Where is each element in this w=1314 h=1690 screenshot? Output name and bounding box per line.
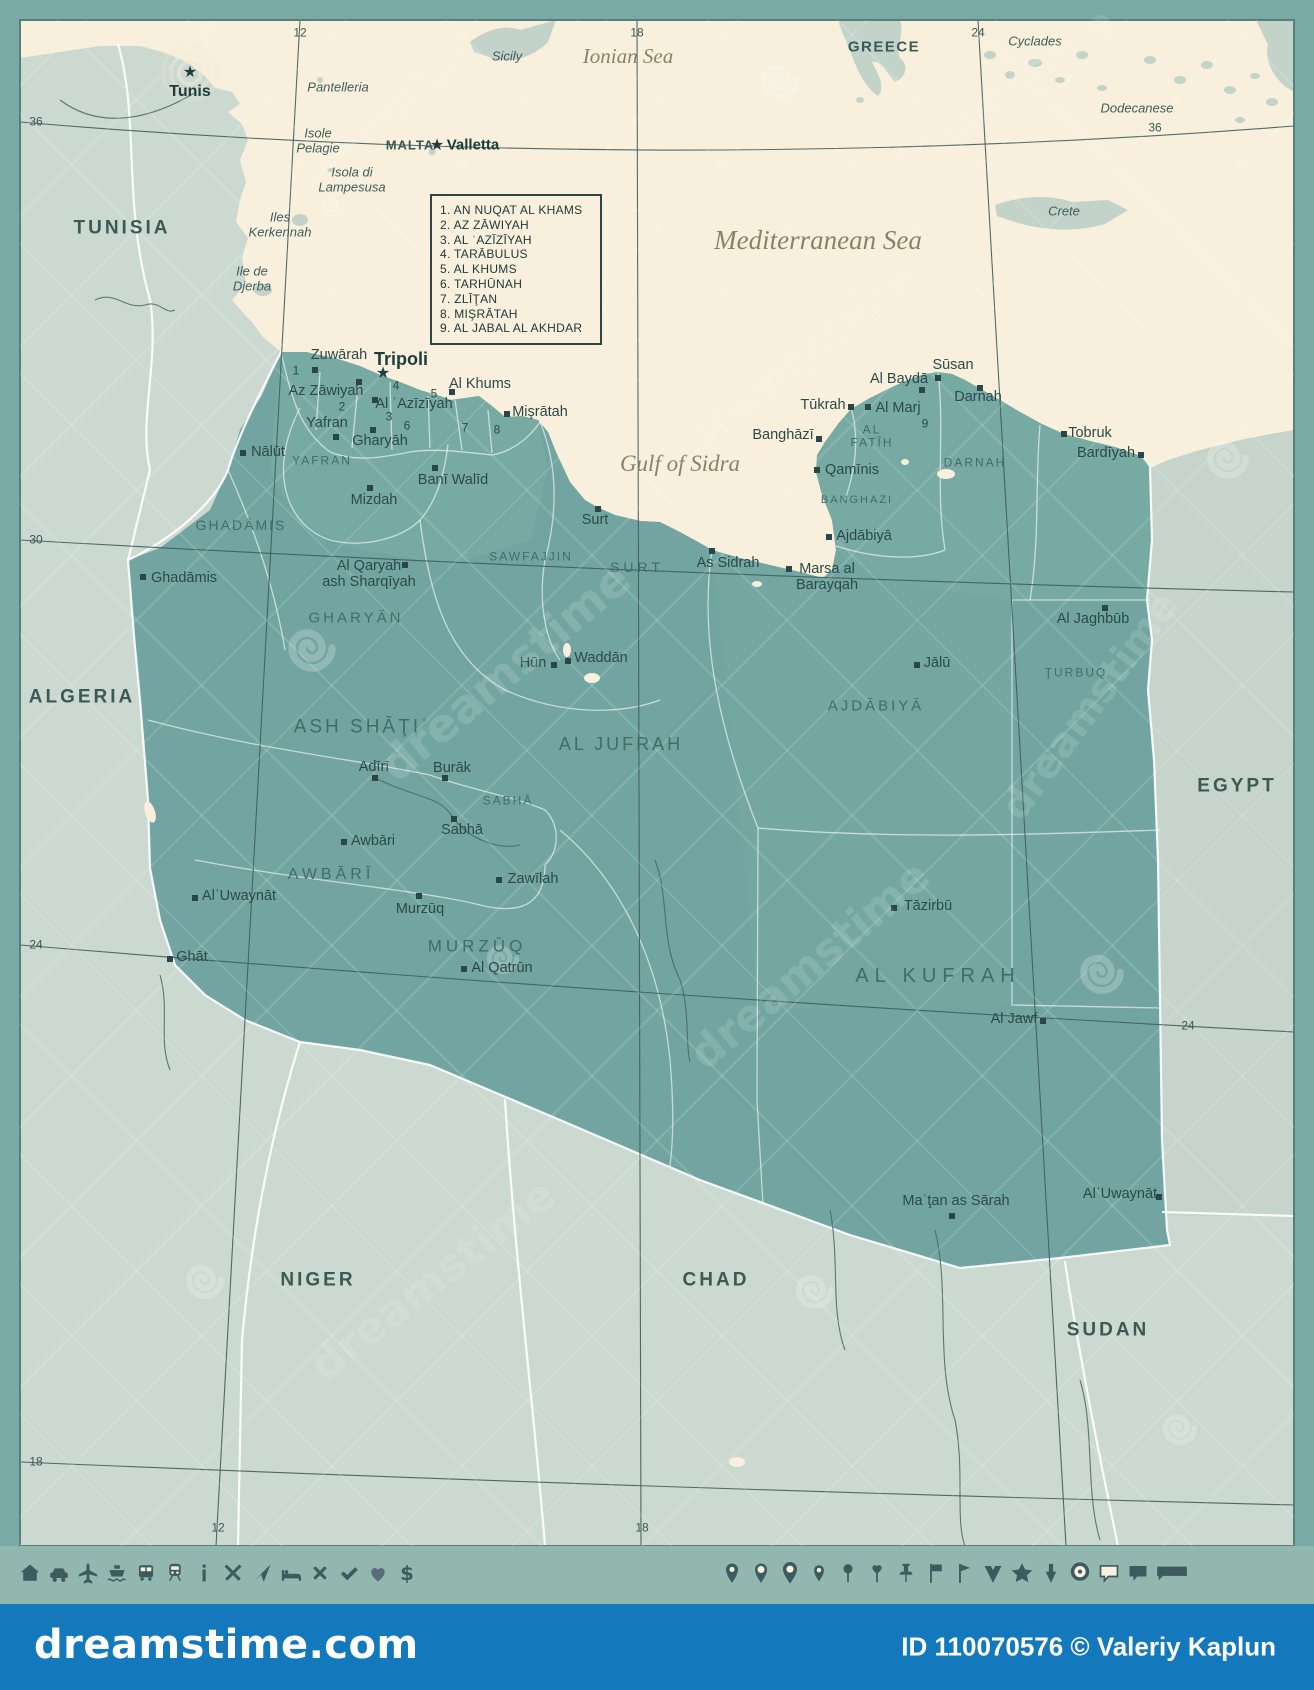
legend-item: 4. TARĀBULUS	[440, 247, 592, 262]
bus-icon	[134, 1561, 158, 1590]
speech-light-icon	[1097, 1561, 1121, 1590]
check-icon	[337, 1561, 361, 1590]
map-poster: 1218243636302424181218Ionian SeaMediterr…	[0, 0, 1314, 1690]
legend-item: 7. ZLĪŢAN	[440, 292, 592, 307]
heart-icon	[366, 1561, 390, 1590]
legend-item: 9. AL JABAL AL AKHDAR	[440, 321, 592, 336]
image-credit: ID 110070576 © Valeriy Kaplun	[901, 1632, 1276, 1663]
pushpin-icon	[894, 1561, 918, 1590]
libya-map-graphic	[0, 0, 1314, 1690]
pin-heart-icon	[865, 1561, 889, 1590]
egypt-shape	[1147, 430, 1294, 1216]
legend-box: 1. AN NUQAT AL KHAMS2. AZ ZĀWIYAH3. AL ʿ…	[430, 194, 602, 345]
flag-pennant-icon	[952, 1561, 976, 1590]
home-icon	[18, 1561, 42, 1590]
legend-item: 5. AL KHUMS	[440, 262, 592, 277]
pin-circle-icon	[749, 1561, 773, 1590]
dollar-icon: $	[395, 1561, 419, 1590]
info-icon	[192, 1561, 216, 1590]
restaurant-icon	[221, 1561, 245, 1590]
flag-icon	[923, 1561, 947, 1590]
legend-item: 8. MIŞRĀTAH	[440, 307, 592, 322]
legend-list: 1. AN NUQAT AL KHAMS2. AZ ZĀWIYAH3. AL ʿ…	[440, 203, 592, 336]
train-icon	[163, 1561, 187, 1590]
close-icon	[308, 1561, 332, 1590]
svg-text:$: $	[400, 1562, 414, 1585]
pin-round-icon	[720, 1561, 744, 1590]
navigation-icon	[250, 1561, 274, 1590]
legend-item: 3. AL ʿAZĪZĪYAH	[440, 233, 592, 248]
target-icon	[1068, 1561, 1092, 1590]
pin-icons-row	[720, 1546, 1189, 1604]
ship-icon	[105, 1561, 129, 1590]
speech-dark-icon	[1126, 1561, 1150, 1590]
dreamstime-logo[interactable]: dreamstime.com	[34, 1622, 419, 1668]
pin-ball-icon	[836, 1561, 860, 1590]
arrow-pin-icon	[1039, 1561, 1063, 1590]
legend-item: 6. TARHŪNAH	[440, 277, 592, 292]
legend-item: 1. AN NUQAT AL KHAMS	[440, 203, 592, 218]
map-icon-band: $	[0, 1546, 1314, 1604]
footer-bar: dreamstime.com ID 110070576 © Valeriy Ka…	[0, 1604, 1314, 1690]
speech-wide-icon	[1155, 1561, 1189, 1590]
legend-item: 2. AZ ZĀWIYAH	[440, 218, 592, 233]
car-icon	[47, 1561, 71, 1590]
hotel-icon	[279, 1561, 303, 1590]
plane-icon	[76, 1561, 100, 1590]
star-icon	[1010, 1561, 1034, 1590]
poi-icons-row: $	[18, 1546, 419, 1604]
pin-large-icon	[778, 1561, 802, 1590]
pin-small-icon	[807, 1561, 831, 1590]
chevron-pin-icon	[981, 1561, 1005, 1590]
